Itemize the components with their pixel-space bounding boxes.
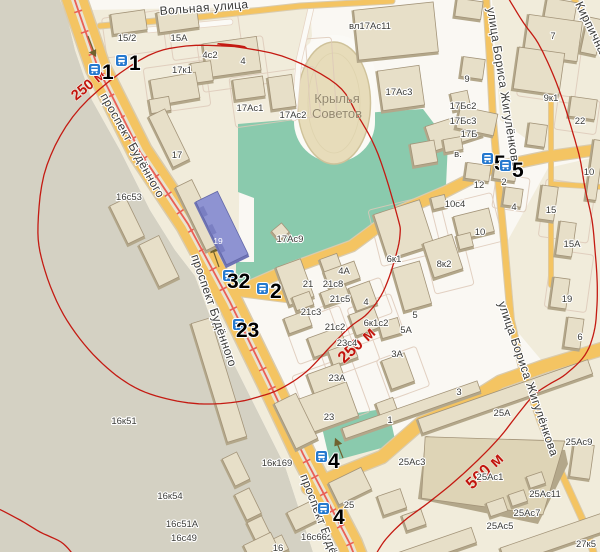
svg-text:16с53: 16с53 xyxy=(116,192,142,203)
svg-text:5А: 5А xyxy=(400,325,412,336)
svg-text:23с4: 23с4 xyxy=(337,338,358,349)
svg-text:17Ас9: 17Ас9 xyxy=(277,234,304,245)
svg-text:16с66: 16с66 xyxy=(301,532,327,543)
svg-text:1: 1 xyxy=(102,61,114,84)
svg-text:1: 1 xyxy=(129,52,141,75)
svg-text:15: 15 xyxy=(546,205,557,216)
svg-text:4: 4 xyxy=(333,506,345,529)
svg-text:2: 2 xyxy=(501,177,506,188)
svg-text:3А: 3А xyxy=(391,349,403,360)
svg-text:21с8: 21с8 xyxy=(323,279,344,290)
svg-text:3: 3 xyxy=(456,387,461,398)
svg-text:17Ас2: 17Ас2 xyxy=(280,110,307,121)
svg-text:25Ас5: 25Ас5 xyxy=(487,521,514,532)
svg-text:10: 10 xyxy=(475,227,486,238)
svg-text:17Бс2: 17Бс2 xyxy=(450,101,477,112)
svg-text:25: 25 xyxy=(344,500,355,511)
svg-text:5: 5 xyxy=(412,310,417,321)
svg-text:25Ас3: 25Ас3 xyxy=(399,457,426,468)
svg-text:4: 4 xyxy=(328,450,340,473)
svg-text:23: 23 xyxy=(324,412,335,423)
svg-text:25А: 25А xyxy=(494,408,512,419)
svg-text:4: 4 xyxy=(511,202,516,213)
svg-text:16к51: 16к51 xyxy=(111,416,136,427)
svg-text:4А: 4А xyxy=(338,266,350,277)
svg-text:17к1: 17к1 xyxy=(172,65,192,76)
svg-text:6к1: 6к1 xyxy=(387,254,402,265)
svg-text:25Ас9: 25Ас9 xyxy=(566,437,593,448)
svg-text:5: 5 xyxy=(512,159,524,182)
svg-text:16к54: 16к54 xyxy=(157,491,182,502)
svg-text:4: 4 xyxy=(363,297,368,308)
svg-text:19: 19 xyxy=(213,236,223,246)
svg-text:32: 32 xyxy=(227,270,250,293)
svg-text:21с5: 21с5 xyxy=(330,294,351,305)
svg-text:16к169: 16к169 xyxy=(262,458,293,469)
svg-text:17: 17 xyxy=(172,150,183,161)
svg-text:Крылья: Крылья xyxy=(314,91,360,106)
svg-text:в.: в. xyxy=(454,149,462,160)
svg-text:15/2: 15/2 xyxy=(118,33,137,44)
svg-text:1: 1 xyxy=(387,415,392,426)
svg-text:Советов: Советов xyxy=(312,106,362,121)
svg-text:25Ас1: 25Ас1 xyxy=(477,472,504,483)
svg-text:9: 9 xyxy=(464,74,469,85)
svg-text:10: 10 xyxy=(584,167,595,178)
svg-text:25Ас11: 25Ас11 xyxy=(529,489,561,500)
svg-text:9к1: 9к1 xyxy=(544,93,559,104)
svg-text:4: 4 xyxy=(240,56,245,67)
svg-text:15А: 15А xyxy=(171,33,189,44)
svg-text:25Ас7: 25Ас7 xyxy=(514,508,541,519)
svg-text:16: 16 xyxy=(273,543,284,552)
svg-text:16с51А: 16с51А xyxy=(166,519,199,530)
svg-text:21: 21 xyxy=(303,279,314,290)
svg-text:2: 2 xyxy=(270,280,282,303)
svg-text:17Б: 17Б xyxy=(461,129,478,140)
svg-text:7: 7 xyxy=(550,31,555,42)
svg-text:23А: 23А xyxy=(329,373,347,384)
svg-text:23: 23 xyxy=(236,319,259,342)
svg-text:вл17Ас11: вл17Ас11 xyxy=(349,21,391,32)
svg-text:21с2: 21с2 xyxy=(325,322,346,333)
svg-text:6к1с2: 6к1с2 xyxy=(364,318,389,329)
svg-text:17Ас1: 17Ас1 xyxy=(237,103,264,114)
svg-text:27к5: 27к5 xyxy=(576,539,596,550)
svg-text:4с2: 4с2 xyxy=(202,50,217,61)
svg-text:22: 22 xyxy=(575,116,586,127)
svg-text:8к2: 8к2 xyxy=(437,259,452,270)
svg-text:17Бс3: 17Бс3 xyxy=(450,116,477,127)
svg-text:6: 6 xyxy=(577,332,582,343)
svg-text:12: 12 xyxy=(474,180,485,191)
svg-text:15А: 15А xyxy=(564,239,582,250)
svg-text:17Ас3: 17Ас3 xyxy=(386,87,413,98)
svg-text:16с49: 16с49 xyxy=(171,533,197,544)
svg-text:19: 19 xyxy=(562,294,573,305)
svg-text:21с3: 21с3 xyxy=(301,307,322,318)
svg-text:10с4: 10с4 xyxy=(445,199,466,210)
